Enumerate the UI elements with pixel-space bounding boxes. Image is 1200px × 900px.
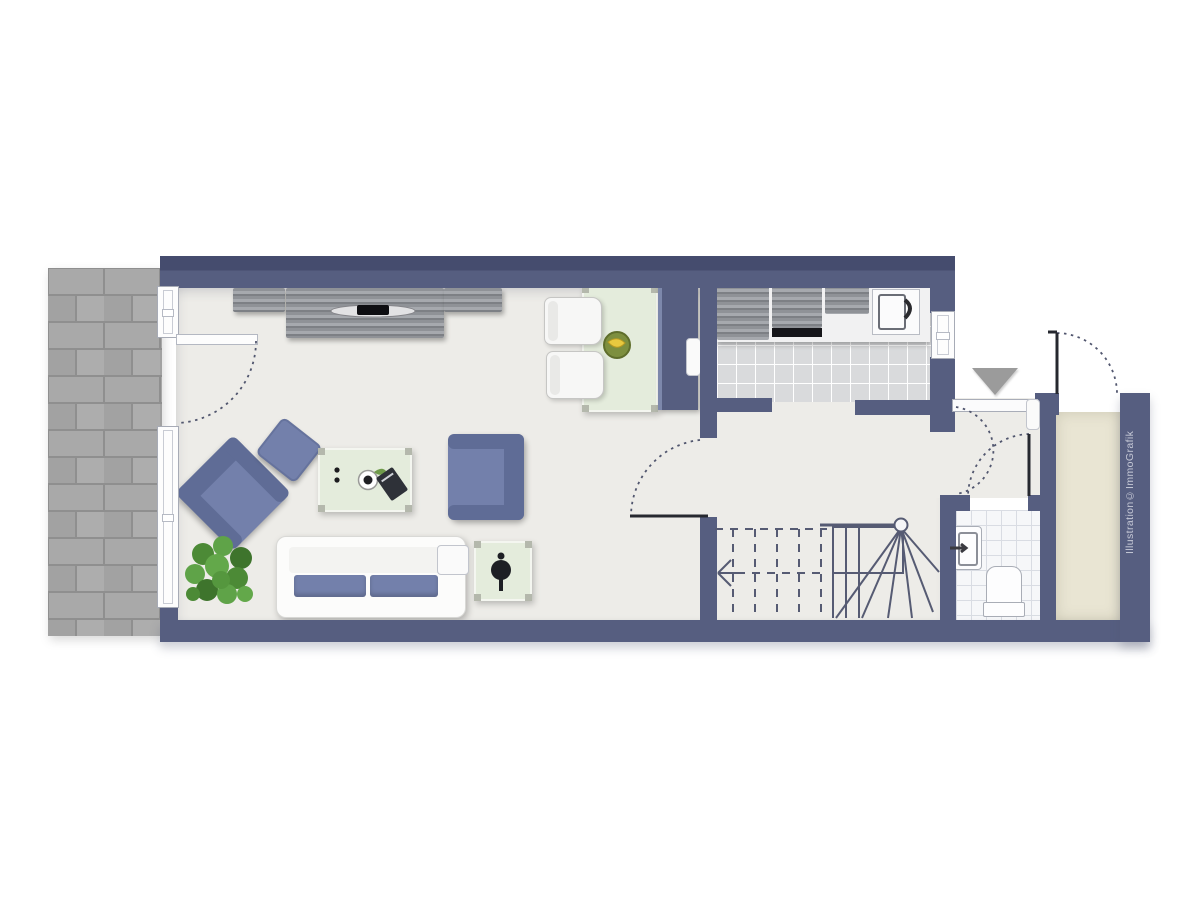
kitchen-stove	[772, 286, 822, 328]
wall-hall-stub	[700, 412, 717, 438]
wall-porch-left	[1040, 410, 1056, 620]
sofa-cushion-2	[370, 575, 438, 597]
wall-hall-lower	[700, 517, 717, 620]
floor-entrance-porch	[1056, 412, 1120, 620]
tv-sideboard	[286, 288, 444, 338]
wc-sink-basin	[958, 532, 978, 566]
sofa	[276, 536, 466, 618]
wc-sink	[953, 526, 982, 570]
entrance-arrow-icon	[972, 368, 1018, 395]
window-kitchen	[931, 311, 955, 359]
floor-plan-canvas: Illustration©ImmoGrafik	[0, 0, 1200, 900]
wall-kitchen-bottom-b	[855, 400, 942, 415]
coffee-table	[318, 448, 412, 512]
dining-chair-2	[546, 351, 604, 399]
cabinet-handle-object	[686, 338, 701, 376]
wall-wc-top-a	[940, 495, 970, 511]
wall-kitchen-left	[700, 288, 717, 402]
sofa-armrest-tray	[437, 545, 469, 575]
kitchen-sink-basin	[878, 294, 906, 330]
window-terrace-lower	[157, 426, 179, 608]
kitchen-oven-front	[772, 328, 822, 337]
tall-cabinet	[658, 286, 698, 410]
wall-kitchen-right-lower	[930, 357, 955, 432]
toilet-cistern	[983, 602, 1025, 617]
wall-bottom	[160, 620, 1150, 642]
wall-top	[160, 256, 955, 288]
wall-kitchen-right-upper	[930, 286, 955, 313]
dining-chair-1	[544, 297, 602, 345]
sofa-cushion-1	[294, 575, 366, 597]
terrace-pavers	[48, 268, 162, 636]
sideboard-right	[444, 288, 502, 312]
front-door-arc	[1057, 333, 1117, 393]
terrace-door-leaf	[176, 334, 258, 345]
wall-wc-left	[940, 495, 956, 620]
kitchen-cabinet	[825, 286, 869, 314]
armchair	[448, 434, 524, 520]
watermark-text: Illustration©ImmoGrafik	[1124, 404, 1148, 554]
sideboard-left	[233, 288, 285, 312]
side-table	[474, 541, 532, 601]
sofa-backrest	[289, 547, 441, 573]
window-terrace-upper	[157, 286, 179, 338]
door-frame-post	[1026, 399, 1040, 430]
terrace-paving	[48, 268, 162, 636]
wall-kitchen-bottom-a	[700, 398, 772, 412]
kitchen-fridge	[717, 286, 769, 340]
kitchen-sink	[872, 289, 920, 335]
